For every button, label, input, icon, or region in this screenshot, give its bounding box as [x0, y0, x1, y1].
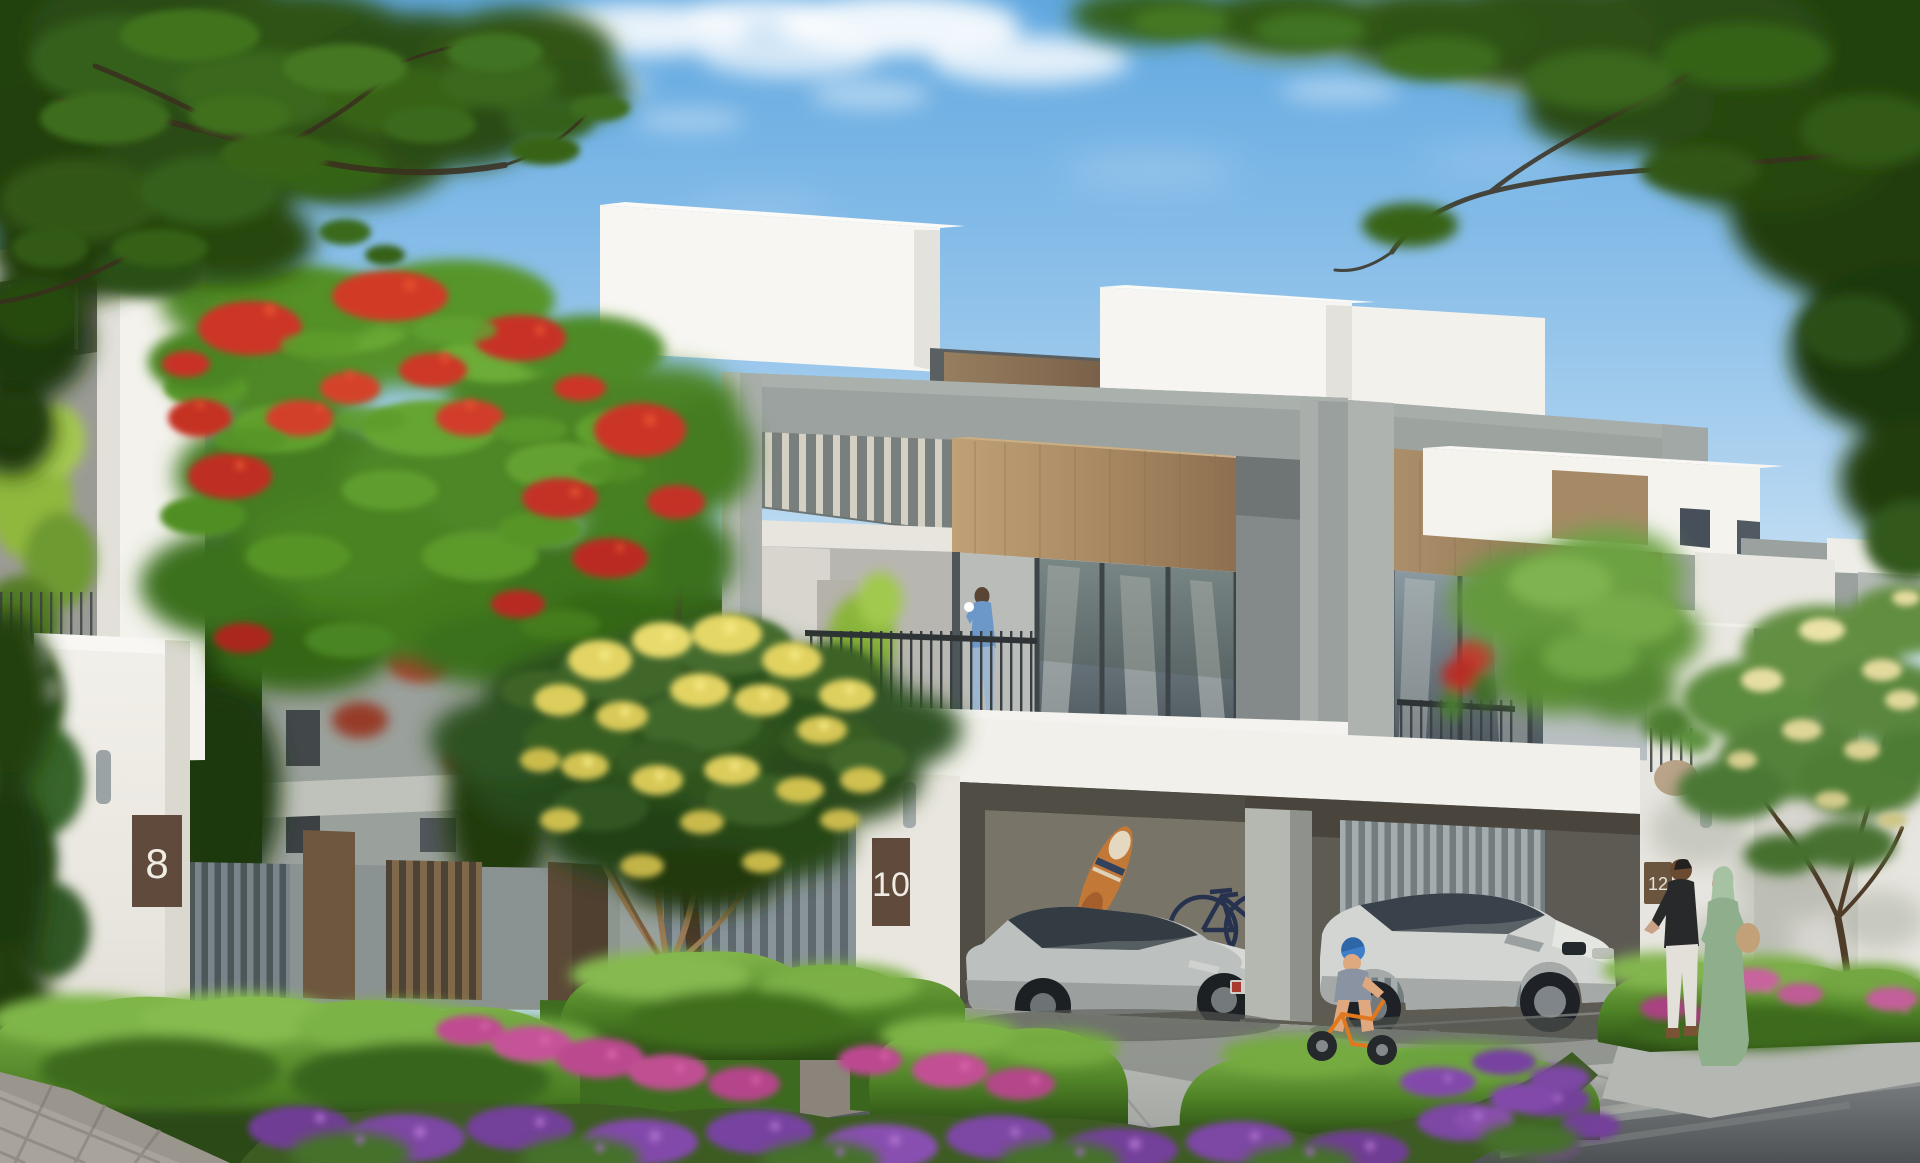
svg-text:8: 8	[145, 840, 168, 887]
svg-text:10: 10	[872, 866, 910, 904]
svg-text:12: 12	[1648, 874, 1668, 894]
